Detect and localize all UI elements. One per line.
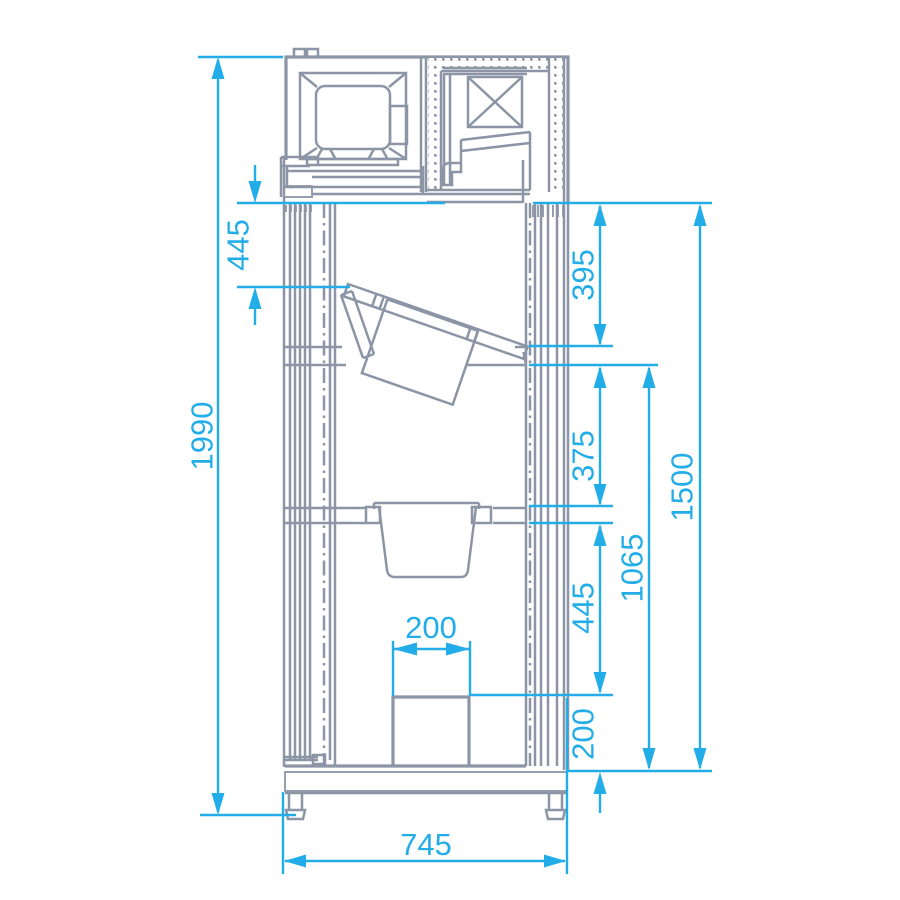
dim-label-445-left: 445 [221,219,256,271]
drain-pan [366,503,491,577]
door-panel [284,157,335,767]
shelf-rails [283,347,526,523]
dim-label-200-right: 200 [566,708,601,760]
dim-label-745: 745 [400,827,452,862]
dim-label-200-mid: 200 [405,610,457,645]
technical-drawing-canvas: 1990 445 395 375 445 200 1065 [0,0,900,900]
evaporator-unit [341,284,528,405]
dim-drain-width-200: 200 [393,610,470,696]
dim-label-1500: 1500 [665,453,700,522]
drain-housing [393,697,469,766]
feet [286,793,565,819]
dim-label-375: 375 [566,430,601,482]
dim-label-395: 395 [566,249,601,301]
dim-label-1065: 1065 [615,534,650,603]
right-foot [546,810,565,819]
dim-label-1990: 1990 [185,402,220,471]
floor-insulation [285,772,567,791]
dim-overall-depth-745: 745 [283,698,567,874]
dim-overall-height-1990: 1990 [185,57,297,815]
dim-1065: 1065 [615,366,656,770]
cabinet-section-drawing: 1990 445 395 375 445 200 1065 [0,0,900,900]
cabinet-base [285,766,567,793]
right-wall [526,192,568,770]
dim-label-445-right: 445 [566,582,601,634]
dim-top-445: 445 [221,165,446,325]
